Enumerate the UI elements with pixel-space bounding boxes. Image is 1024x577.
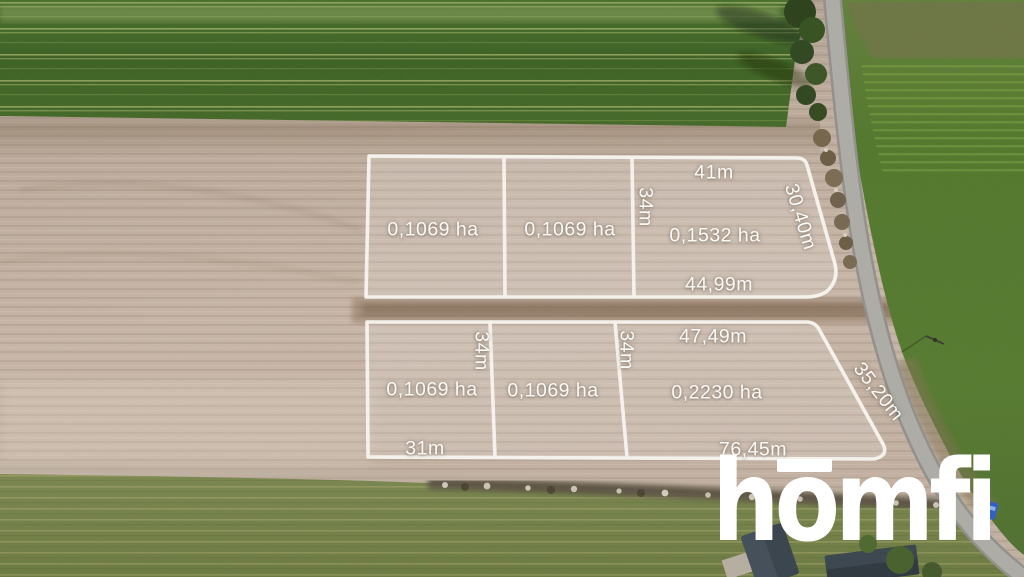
plot-divider-top-1 <box>504 157 505 296</box>
plot6-top-dimension: 47,49m <box>679 326 747 349</box>
plot6-left-dimension: 34m <box>615 330 638 369</box>
plot2-area-label: 0,1069 ha <box>524 219 615 242</box>
homfi-logo: homfi <box>712 446 993 558</box>
plot5-area-label: 0,1069 ha <box>507 380 598 403</box>
plot3-area-label: 0,1532 ha <box>669 225 760 248</box>
plot3-left-dimension: 34m <box>634 187 657 226</box>
plot1-area-label: 0,1069 ha <box>387 219 478 242</box>
plot4-bottom-dimension: 31m <box>405 438 444 461</box>
plot6-area-label: 0,2230 ha <box>671 382 762 405</box>
plot3-top-dimension: 41m <box>694 162 733 185</box>
plot4-right-dimension: 34m <box>470 331 493 370</box>
plot3-bottom-dimension: 44,99m <box>685 274 753 297</box>
homfi-logo-macron-bar <box>777 459 832 472</box>
plot-divider-top-2 <box>632 158 634 296</box>
plot4-area-label: 0,1069 ha <box>386 379 477 402</box>
aerial-photo-canvas: 0,1069 ha 0,1069 ha 0,1532 ha 41m 34m 30… <box>0 0 1024 577</box>
